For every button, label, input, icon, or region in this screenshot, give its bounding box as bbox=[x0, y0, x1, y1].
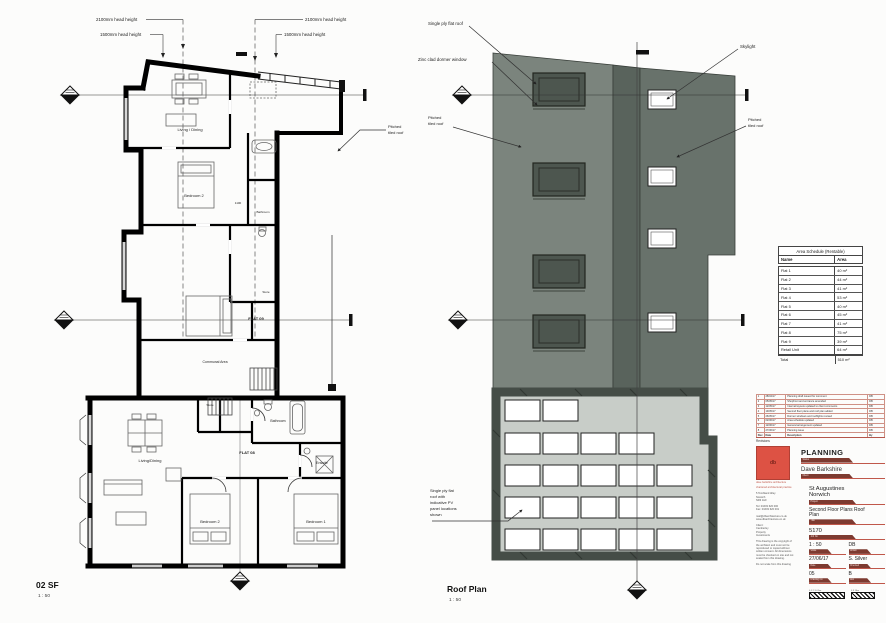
logo-monogram: db bbox=[770, 460, 776, 466]
job-field-bar: Job No bbox=[809, 535, 885, 541]
table-row: Retail Unit64 m² bbox=[779, 346, 862, 354]
second-floor-plan: 2100mm head height 1500mm head height 21… bbox=[36, 17, 404, 599]
flat08-doors bbox=[212, 408, 312, 492]
rev-h-date: Date bbox=[764, 433, 786, 438]
scale-field-label: Scale bbox=[809, 549, 832, 554]
annotation-pitched-right-1: Pitched bbox=[748, 117, 761, 122]
practice-details: chartered architectural practice 5 Tombl… bbox=[756, 486, 806, 599]
address-line: NR3 1HF bbox=[756, 499, 806, 502]
table-row: Flat 140 m² bbox=[779, 267, 862, 276]
area-schedule-header: Name Area bbox=[778, 256, 863, 264]
scale-bar-1 bbox=[809, 592, 845, 599]
roof-plan: Single ply flat roof Zinc clad dormer wi… bbox=[418, 21, 764, 603]
scale-bar-2 bbox=[851, 592, 875, 599]
col-header-area: Area bbox=[835, 256, 862, 263]
total-label: Total bbox=[778, 356, 836, 364]
copyright-line: scaled from this drawing. bbox=[756, 557, 806, 560]
pitched-roof-leader bbox=[338, 130, 386, 151]
title-field-bar: Title bbox=[809, 519, 885, 525]
annotation-pitched-roof-2: tiled roof bbox=[388, 130, 404, 135]
roof-surfaces bbox=[493, 53, 735, 390]
drawn-value: DB bbox=[849, 543, 886, 548]
contact-line: Fax: 01603 620 001 bbox=[756, 508, 806, 511]
client-block: Client: Camberley Property Investments bbox=[756, 524, 806, 537]
cell-name: Retail Unit bbox=[779, 346, 835, 354]
area-schedule-body: Flat 140 m² Flat 244 m² Flat 341 m² Flat… bbox=[778, 266, 863, 355]
leader-arrowheads bbox=[161, 44, 278, 61]
upper-wing-door-gaps bbox=[162, 100, 247, 340]
annotation-skylight: Skylight bbox=[740, 44, 756, 49]
cell-name: Flat 7 bbox=[779, 320, 835, 328]
cell-name: Flat 1 bbox=[779, 267, 835, 275]
table-row: Flat 244 m² bbox=[779, 276, 862, 285]
rev-h-by: By bbox=[868, 433, 885, 438]
checked-field-bar: Checked bbox=[849, 564, 886, 570]
annotation-pitched-roof-1: Pitched bbox=[388, 124, 401, 129]
date-field-label: Date bbox=[809, 564, 832, 569]
room-label-bedroom2-lower: Bedroom 2 bbox=[200, 519, 220, 524]
annotation-head-2100-right: 2100mm head height bbox=[305, 17, 347, 22]
room-label-bathroom-lower: Bathroom bbox=[270, 419, 285, 423]
table-row: Flat 453 m² bbox=[779, 293, 862, 302]
status-field-label: Status bbox=[801, 458, 853, 463]
practice-note: chartered architectural practice bbox=[756, 486, 806, 489]
table-row: Flat 939 m² bbox=[779, 337, 862, 346]
project-field-bar: Project bbox=[809, 500, 885, 506]
annotation-head-1500-right: 1500mm head height bbox=[284, 32, 326, 37]
annotation-pv-5: shown bbox=[430, 512, 442, 517]
table-row: Flat 875 m² bbox=[779, 328, 862, 337]
rev-h-no: Rev bbox=[757, 433, 765, 438]
status-field-bar: Status bbox=[801, 458, 885, 464]
cell-area: 41 m² bbox=[835, 320, 862, 328]
room-label-bedroom2-upper: Bedroom 2 bbox=[184, 193, 204, 198]
date-field-bar: Date bbox=[809, 564, 846, 570]
stairs-upper bbox=[250, 368, 277, 390]
cell-area: 44 m² bbox=[835, 276, 862, 284]
job-number: 5170 bbox=[809, 528, 885, 534]
cell-name: Flat 9 bbox=[779, 337, 835, 345]
roof-plan-title: Roof Plan bbox=[447, 584, 487, 594]
cell-area: 64 m² bbox=[835, 346, 862, 354]
annotation-dormer: Zinc clad dormer window bbox=[418, 57, 467, 62]
title-field-label: Title bbox=[809, 519, 856, 524]
drawn-field-label: Drawn bbox=[849, 549, 872, 554]
cell-area: 45 m² bbox=[835, 311, 862, 319]
cell-area: 39 m² bbox=[835, 337, 862, 345]
rev-h-desc: Description bbox=[786, 433, 868, 438]
logo-caption: dave barkshire architecture bbox=[756, 481, 796, 484]
annotation-pitched-left-1: Pitched bbox=[428, 115, 441, 120]
scale-bars: 0 1 2 3 4 5m 0 5 10m bbox=[809, 590, 885, 599]
area-schedule: Area Schedule (Rentable) Name Area Flat … bbox=[778, 246, 863, 364]
room-label-store-upper: Store bbox=[262, 290, 270, 294]
plans-canvas: 2100mm head height 1500mm head height 21… bbox=[0, 0, 886, 623]
cell-area: 40 m² bbox=[835, 267, 862, 275]
table-row: Flat 540 m² bbox=[779, 302, 862, 311]
room-label-ensuite: Ensuite bbox=[316, 461, 328, 465]
annotation-pitched-left-2: tiled roof bbox=[428, 121, 444, 126]
dwg-field-bar: Drawing No bbox=[809, 578, 846, 584]
job-field-label: Job No bbox=[809, 535, 856, 540]
communal-area-label: Communal Area bbox=[202, 360, 227, 364]
room-label-bathroom-upper: Bathroom bbox=[256, 210, 270, 214]
title-block: 128/04/17Planning draft issued for comme… bbox=[756, 394, 885, 599]
dwg-field-label: Drawing No bbox=[809, 578, 832, 583]
floor-plan-scale: 1 : 50 bbox=[38, 593, 50, 599]
practice-identity: db dave barkshire architecture PLANNING … bbox=[756, 446, 885, 484]
cell-name: Flat 3 bbox=[779, 285, 835, 293]
upper-wing-walls bbox=[124, 62, 341, 398]
project-name-line2: Norwich bbox=[809, 492, 885, 498]
revision-value: B bbox=[849, 572, 886, 577]
drawing-fields: St Augustines Norwich Project Second Flo… bbox=[806, 486, 885, 599]
contact-block: Tel: 01603 620 000 Fax: 01603 620 001 bbox=[756, 505, 806, 512]
table-row: Flat 741 m² bbox=[779, 320, 862, 329]
drawing-title-line2: Plan bbox=[809, 513, 885, 518]
rev-field-label: Rev bbox=[849, 578, 872, 583]
upper-wing-partitions bbox=[126, 72, 277, 340]
area-schedule-title: Area Schedule (Rentable) bbox=[778, 246, 863, 256]
checked-field-label: Checked bbox=[849, 564, 872, 569]
annotation-pv-4: panel locations bbox=[430, 506, 457, 511]
annotation-head-2100-left: 2100mm head height bbox=[96, 17, 138, 22]
web-block: mail@dbarchitecture.co.uk www.dbarchitec… bbox=[756, 515, 806, 522]
floor-plan-title: 02 SF bbox=[36, 580, 59, 590]
address-block: 5 Tombland Alley Norwich NR3 1HF bbox=[756, 492, 806, 502]
annotation-head-1500-left: 1500mm head height bbox=[100, 32, 142, 37]
cell-area: 75 m² bbox=[835, 328, 862, 336]
drawing-number-value: 05 bbox=[809, 572, 846, 577]
flat-08-label: FLAT 08 bbox=[239, 450, 255, 455]
web-line: www.dbarchitecture.co.uk bbox=[756, 518, 806, 521]
upper-wing-windows bbox=[123, 98, 127, 290]
cell-name: Flat 4 bbox=[779, 293, 835, 301]
project-field-label: Project bbox=[809, 500, 856, 505]
total-value: 510 m² bbox=[836, 356, 863, 364]
table-row: Flat 341 m² bbox=[779, 285, 862, 294]
cell-name: Flat 5 bbox=[779, 302, 835, 310]
annotation-pv-1: Single ply flat bbox=[430, 488, 455, 493]
cell-area: 41 m² bbox=[835, 285, 862, 293]
revision-table: 128/04/17Planning draft issued for comme… bbox=[756, 394, 885, 438]
roof-plan-scale: 1 : 50 bbox=[449, 597, 461, 603]
dim-1100: 1100 bbox=[235, 201, 242, 205]
area-schedule-total: Total 510 m² bbox=[778, 355, 863, 364]
practice-logo: db bbox=[756, 446, 790, 480]
cell-name: Flat 8 bbox=[779, 328, 835, 336]
client-name: Dave Barkshire bbox=[801, 467, 885, 473]
annotation-single-ply: Single ply flat roof bbox=[428, 21, 464, 26]
scale-value: 1 : 50 bbox=[809, 543, 846, 548]
cell-name: Flat 2 bbox=[779, 276, 835, 284]
cell-name: Flat 6 bbox=[779, 311, 835, 319]
flat-roof bbox=[493, 389, 715, 559]
status-value: PLANNING bbox=[801, 448, 885, 457]
table-row: Flat 645 m² bbox=[779, 311, 862, 320]
cell-area: 40 m² bbox=[835, 302, 862, 310]
copyright-block: This drawing is the copyright of the arc… bbox=[756, 540, 806, 560]
date-value: 27/06/17 bbox=[809, 557, 846, 562]
client-field-label: Client bbox=[801, 474, 853, 479]
room-label-bedroom1-lower: Bedroom 1 bbox=[306, 519, 326, 524]
scale-field-bar: Scale bbox=[809, 549, 846, 555]
drawing-sheet: 2100mm head height 1500mm head height 21… bbox=[0, 0, 886, 623]
annotation-pitched-right-2: tiled roof bbox=[748, 123, 764, 128]
room-label-living-upper: Living / Dining bbox=[177, 127, 202, 132]
upper-furniture bbox=[166, 74, 276, 336]
no-scale-note: Do not scale from this drawing bbox=[756, 563, 806, 566]
rev-field-bar: Rev bbox=[849, 578, 886, 584]
col-header-name: Name bbox=[779, 256, 835, 263]
annotation-pv-2: roof with bbox=[430, 494, 445, 499]
room-label-living-lower: Living/Dining bbox=[139, 458, 162, 463]
cell-area: 53 m² bbox=[835, 293, 862, 301]
flat-09-label: FLAT 09 bbox=[248, 316, 264, 321]
revisions-label: Revisions bbox=[756, 439, 885, 443]
annotation-pv-3: indicative PV bbox=[430, 500, 453, 505]
drawn-field-bar: Drawn bbox=[849, 549, 886, 555]
client-field-bar: Client bbox=[801, 474, 885, 480]
revision-header-row: RevDateDescriptionBy bbox=[757, 433, 885, 438]
room-label-store-lower: Store bbox=[206, 403, 214, 407]
checked-value: S. Silver bbox=[849, 557, 886, 562]
client-line: Investments bbox=[756, 534, 806, 537]
